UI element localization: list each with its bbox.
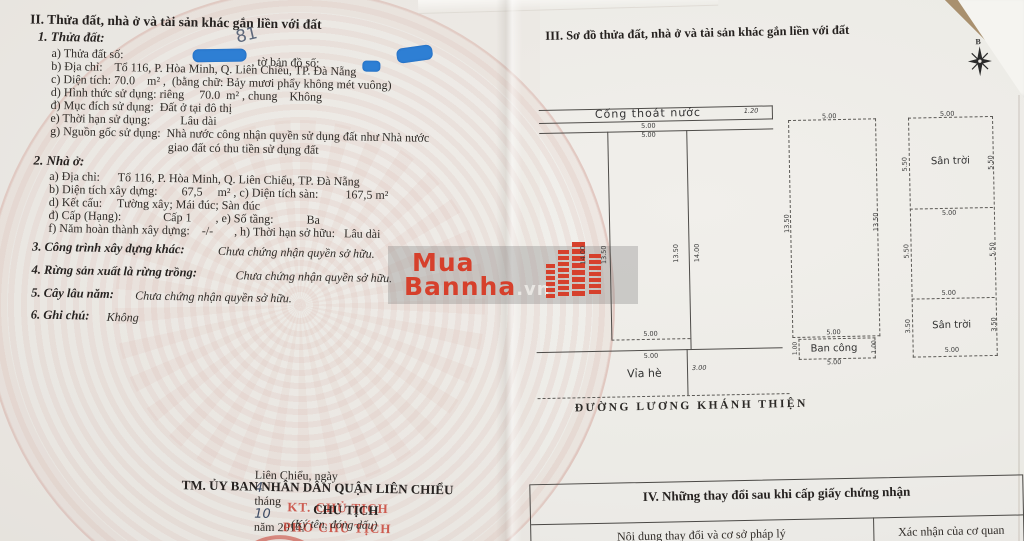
plan2-mid-left-dim: 5.50 — [903, 244, 910, 259]
balcony-right-dim: 1.00 — [871, 340, 878, 353]
plan2-bottom-dim: 5.00 — [945, 347, 960, 354]
terrace1-left-dim: 5.50 — [902, 157, 909, 172]
terrace2-right-dim: 3.50 — [991, 317, 998, 332]
floorplan1-outline — [788, 118, 880, 338]
plot-top-dim-a: 5.00 — [641, 123, 656, 130]
right-page: III. Sơ đồ thửa đất, nhà ở và tài sản kh… — [0, 0, 1024, 541]
plan2-mid-right-dim: 5.50 — [989, 242, 996, 257]
balcony-bottom-dim: 5.00 — [827, 359, 842, 366]
plot-left-dims: 14.00 13.50 — [566, 245, 622, 265]
drain-width-dim: 1.20 — [744, 108, 759, 115]
sidewalk-label: Vỉa hè — [627, 367, 662, 381]
section4-column-divider — [873, 517, 876, 541]
plot-left-boundary — [607, 132, 612, 340]
plan1-left-dim: 13.50 — [784, 214, 791, 233]
plan2-div2-dim: 5.00 — [941, 290, 956, 297]
plot-top-dim-b: 5.00 — [641, 132, 656, 139]
plan1-top-dim: 5.00 — [822, 113, 837, 120]
section4-col2-header: Xác nhận của cơ quan — [881, 522, 1021, 540]
terrace1-label: Sân trời — [931, 154, 970, 168]
sidewalk-depth-dim: 3.00 — [692, 365, 707, 372]
plan2-top-dim: 5.00 — [940, 111, 955, 118]
compass-icon — [966, 45, 995, 80]
plot-right-boundary — [686, 130, 691, 349]
plot-bottom-dim-a: 5.00 — [643, 331, 658, 338]
terrace1-right-dim: 5.50 — [988, 155, 995, 170]
balcony-label: Ban công — [811, 342, 858, 356]
plot-bottom-dashed — [611, 338, 690, 341]
section3-title: III. Sơ đồ thửa đất, nhà ở và tài sản kh… — [545, 24, 849, 43]
balcony-left-dim: 1.00 — [792, 342, 799, 355]
drain-right-edge — [772, 105, 773, 119]
plot-right-dims: 13.50 14.00 — [659, 243, 715, 263]
certificate-photo: II. Thửa đất, nhà ở và tài sản khác gắn … — [0, 0, 1024, 541]
plot-top-line — [539, 128, 773, 134]
sidewalk-top-line — [537, 347, 783, 353]
section4-col1-header: Nội dung thay đổi và cơ sở pháp lý — [551, 525, 851, 541]
drain-label: Cống thoát nước — [595, 106, 701, 121]
terrace2-label: Sân trời — [932, 318, 971, 332]
section4-table: IV. Những thay đổi sau khi cấp giấy chứn… — [529, 474, 1024, 541]
plan2-div1-dim: 5.00 — [942, 210, 957, 217]
sidewalk-dim-line — [687, 349, 689, 395]
terrace2-left-dim: 3.50 — [905, 319, 912, 334]
balcony-top-dim: 5.00 — [826, 329, 841, 336]
street-name: ĐƯỜNG LƯƠNG KHÁNH THIỆN — [575, 398, 808, 416]
plan1-right-dim: 13.50 — [873, 212, 880, 231]
section4-title: IV. Những thay đổi sau khi cấp giấy chứn… — [530, 481, 1022, 507]
plot-bottom-dim-b: 5.00 — [644, 353, 659, 360]
